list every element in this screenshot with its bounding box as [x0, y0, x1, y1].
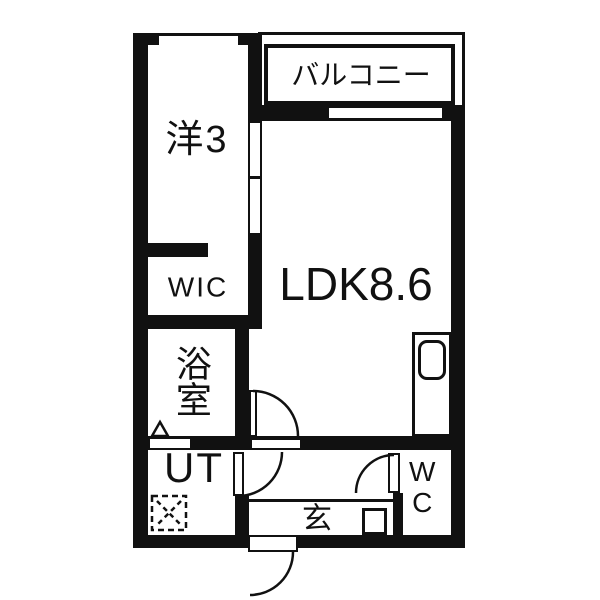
plan-symbols-overlay	[0, 0, 600, 600]
floorplan: バルコニー 洋3 WIC LDK8.6 浴室 UT 玄 WC	[0, 0, 600, 600]
ldk-door-swing-arc	[253, 391, 298, 436]
entrance-door-swing-arc	[250, 552, 293, 595]
bathroom-door-triangle-marker	[152, 422, 168, 436]
utility-door-swing-arc	[238, 452, 282, 496]
wc-door-swing-arc	[356, 455, 394, 493]
